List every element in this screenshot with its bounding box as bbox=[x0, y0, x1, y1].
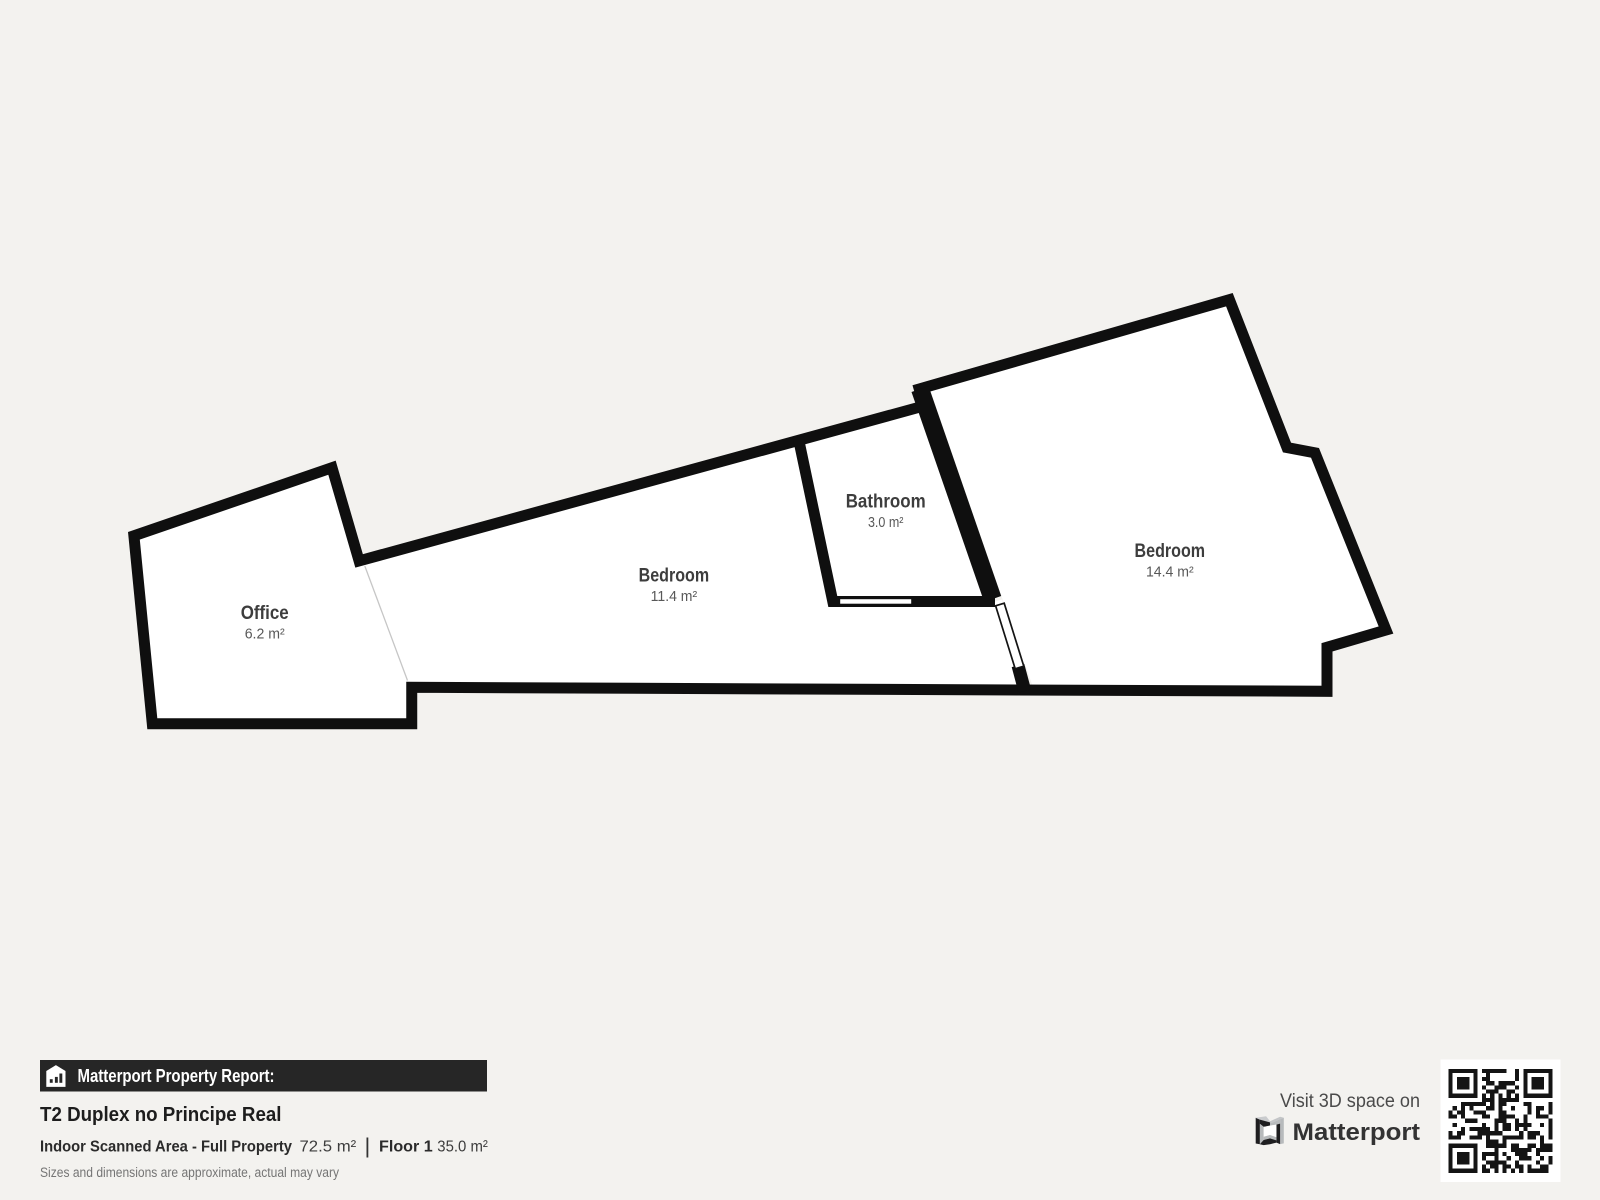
svg-text:35.0 m²: 35.0 m² bbox=[437, 1139, 488, 1156]
svg-text:6.2 m²: 6.2 m² bbox=[245, 627, 285, 643]
svg-text:Matterport: Matterport bbox=[1293, 1119, 1421, 1146]
svg-text:Bathroom: Bathroom bbox=[846, 492, 926, 513]
svg-text:Bedroom: Bedroom bbox=[639, 566, 710, 587]
svg-text:Floor 1: Floor 1 bbox=[379, 1139, 433, 1156]
svg-text:Bedroom: Bedroom bbox=[1135, 541, 1206, 562]
svg-text:T2 Duplex no Principe Real: T2 Duplex no Principe Real bbox=[40, 1104, 282, 1126]
svg-text:14.4 m²: 14.4 m² bbox=[1146, 565, 1194, 581]
svg-text:3.0 m²: 3.0 m² bbox=[868, 515, 904, 531]
svg-text:Sizes and dimensions are appro: Sizes and dimensions are approximate, ac… bbox=[40, 1165, 339, 1180]
svg-text:Visit 3D space on: Visit 3D space on bbox=[1280, 1091, 1420, 1112]
svg-text:Indoor Scanned Area - Full Pro: Indoor Scanned Area - Full Property bbox=[40, 1139, 292, 1156]
svg-text:Matterport Property Report:: Matterport Property Report: bbox=[78, 1066, 275, 1086]
svg-text:11.4 m²: 11.4 m² bbox=[651, 589, 698, 605]
svg-text:Office: Office bbox=[241, 603, 289, 624]
svg-text:72.5 m²: 72.5 m² bbox=[300, 1139, 357, 1156]
